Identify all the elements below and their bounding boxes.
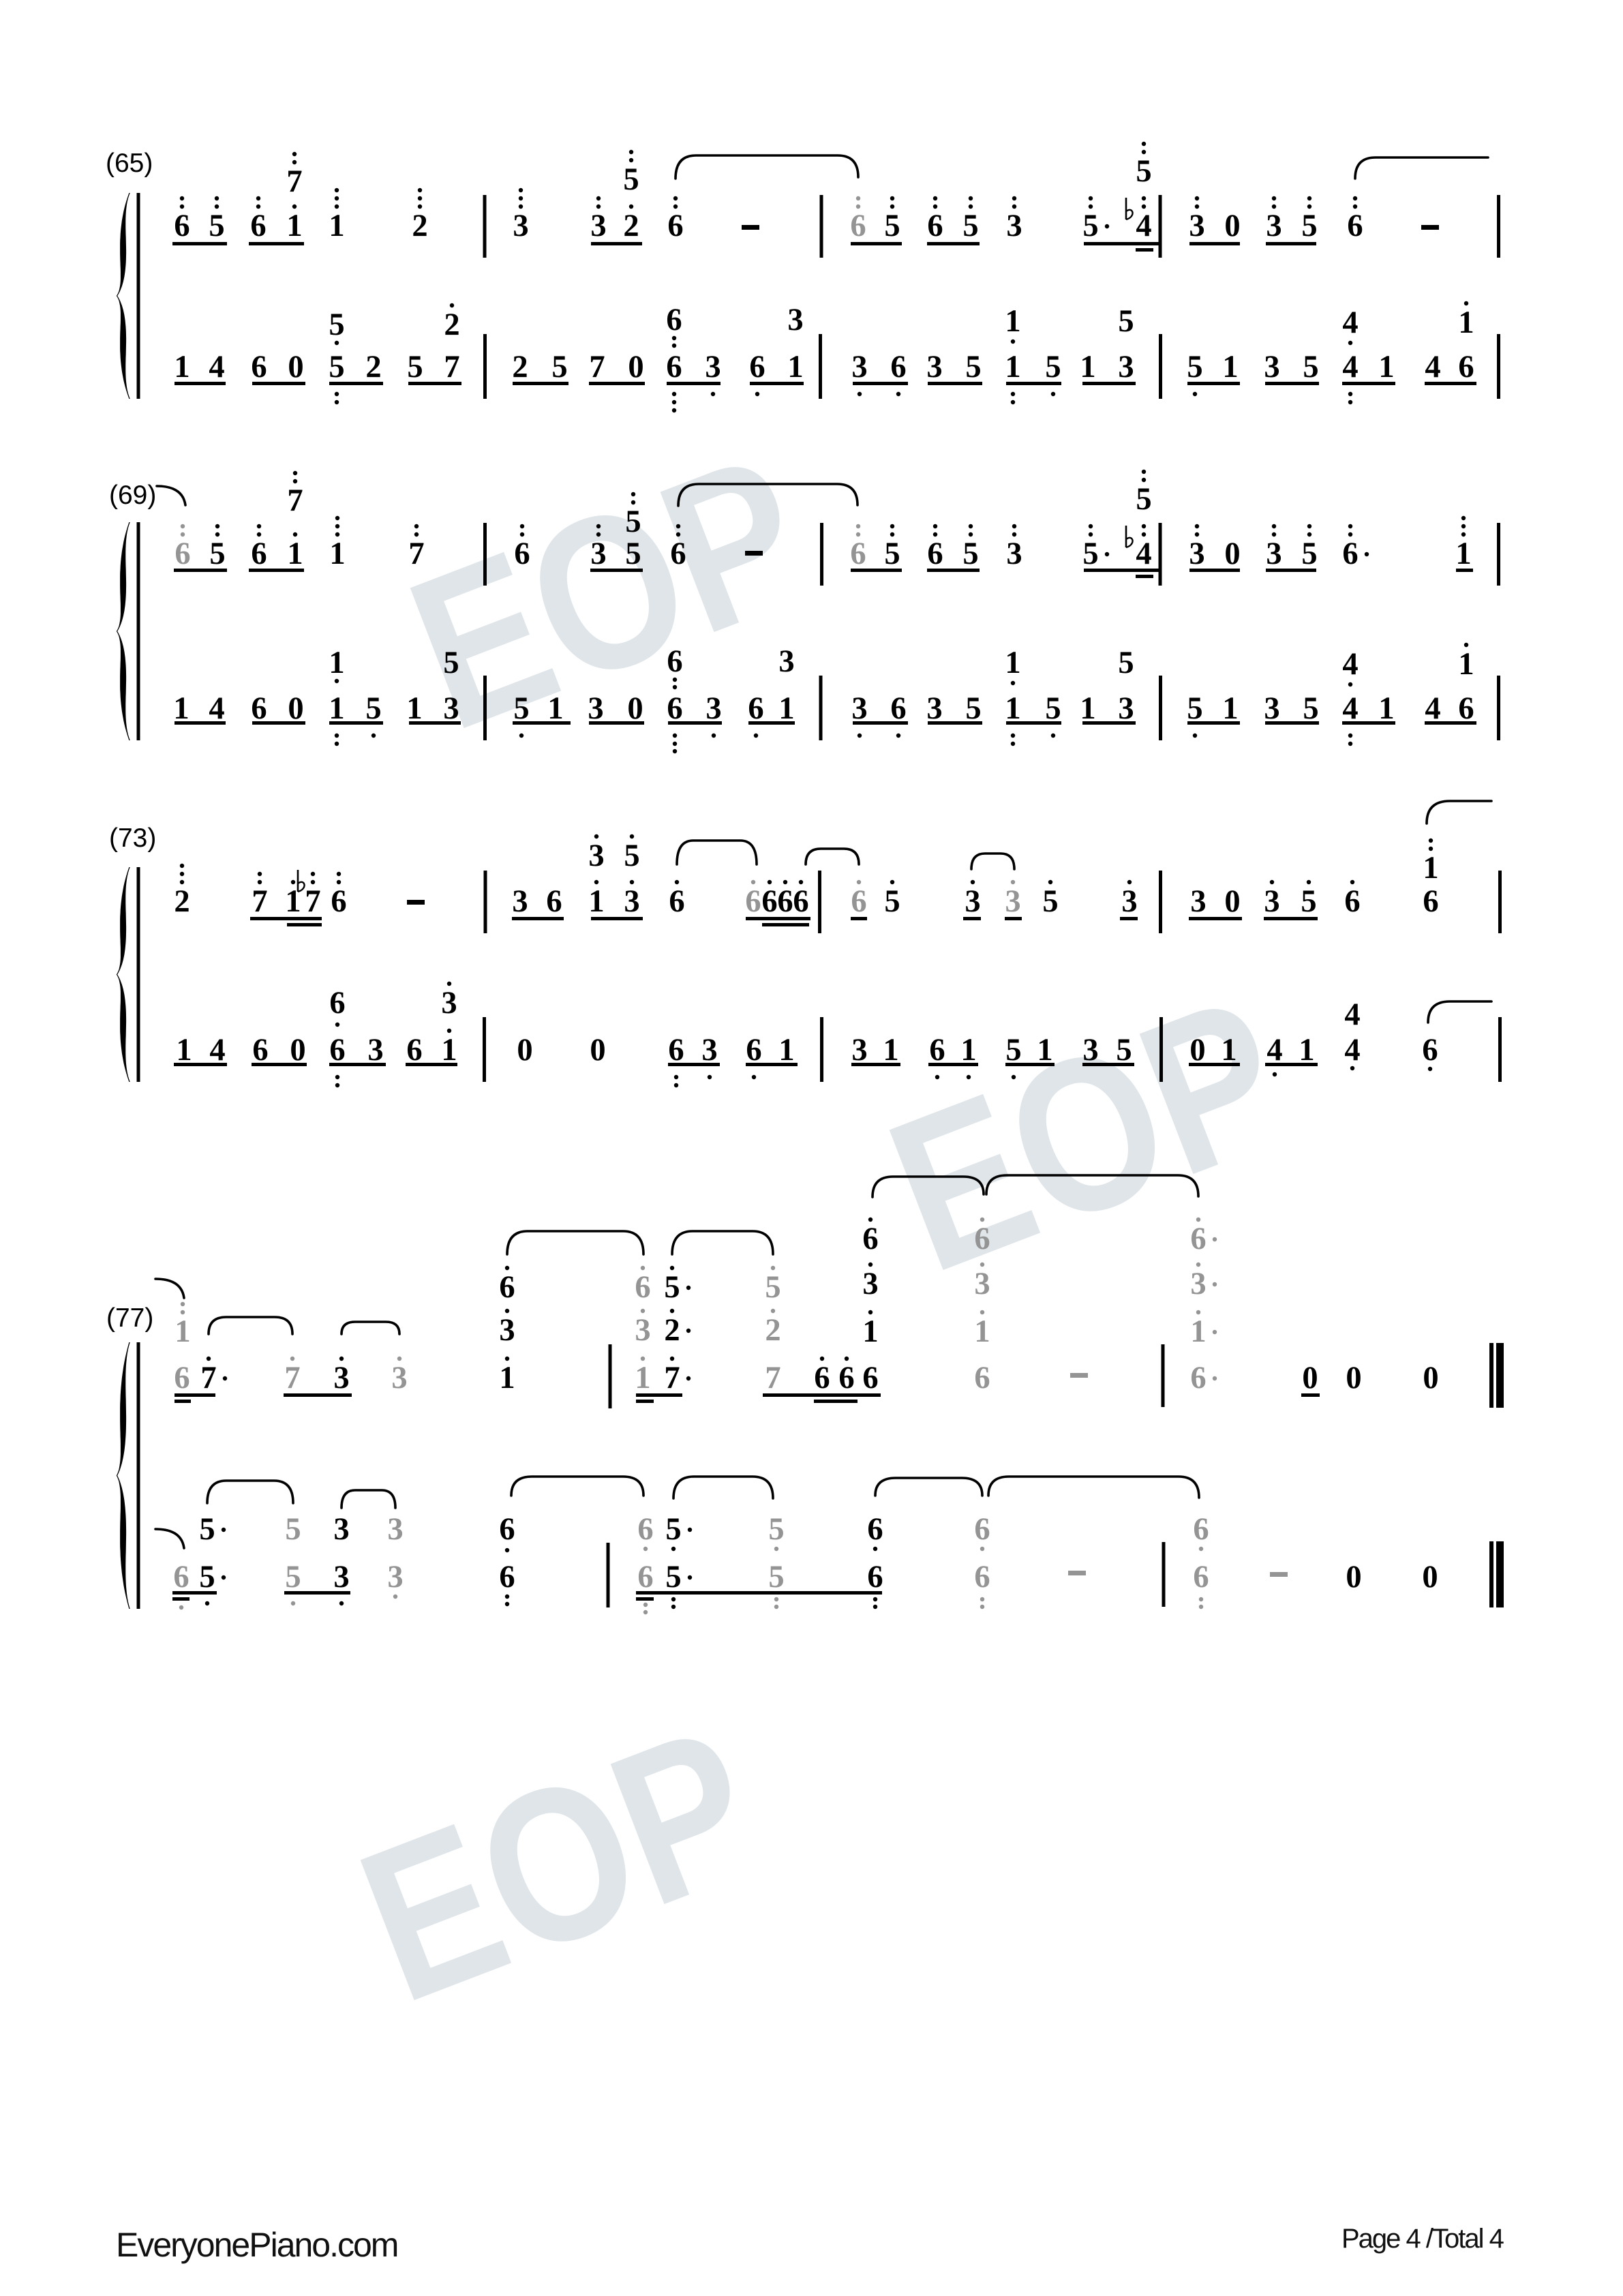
svg-text:1: 1 xyxy=(175,1314,190,1349)
svg-text:5: 5 xyxy=(665,1512,681,1547)
svg-text:3: 3 xyxy=(333,1512,349,1547)
svg-text:3: 3 xyxy=(513,209,528,243)
svg-text:3: 3 xyxy=(624,884,639,919)
svg-text:(69): (69) xyxy=(109,481,156,510)
svg-text:(65): (65) xyxy=(106,149,153,178)
svg-text:6: 6 xyxy=(838,1361,854,1395)
svg-text:5: 5 xyxy=(443,646,459,680)
svg-text:6: 6 xyxy=(890,691,906,726)
svg-text:6: 6 xyxy=(927,537,943,571)
svg-text:3: 3 xyxy=(1082,1033,1098,1068)
svg-text:2: 2 xyxy=(174,884,189,919)
svg-text:1: 1 xyxy=(588,884,604,919)
svg-text:1: 1 xyxy=(1005,691,1020,726)
svg-text:1: 1 xyxy=(286,209,302,243)
svg-text:7: 7 xyxy=(589,350,605,384)
svg-text:6: 6 xyxy=(499,1270,515,1305)
svg-text:3: 3 xyxy=(1118,350,1134,384)
svg-text:6: 6 xyxy=(814,1361,830,1395)
svg-text:4: 4 xyxy=(1136,537,1151,571)
svg-text:1: 1 xyxy=(778,691,794,726)
svg-text:1: 1 xyxy=(1423,851,1438,886)
svg-text:3: 3 xyxy=(787,303,803,337)
svg-text:0: 0 xyxy=(590,1033,605,1068)
svg-text:5: 5 xyxy=(768,1512,784,1547)
svg-text:1: 1 xyxy=(1458,305,1474,340)
svg-text:1: 1 xyxy=(1005,646,1020,680)
svg-text:6: 6 xyxy=(927,209,943,243)
svg-text:3: 3 xyxy=(974,1267,990,1301)
svg-text:3: 3 xyxy=(635,1313,650,1348)
svg-text:3: 3 xyxy=(926,691,942,726)
svg-text:4: 4 xyxy=(209,691,224,726)
svg-text:5: 5 xyxy=(1301,884,1316,919)
svg-text:4: 4 xyxy=(1342,350,1358,384)
svg-text:6: 6 xyxy=(666,350,682,384)
svg-text:3: 3 xyxy=(590,537,606,571)
svg-text:7: 7 xyxy=(287,483,303,518)
svg-text:3: 3 xyxy=(499,1313,515,1348)
svg-text:1: 1 xyxy=(1080,691,1095,726)
svg-text:7: 7 xyxy=(408,537,424,571)
svg-text:3: 3 xyxy=(1005,884,1020,919)
svg-text:3: 3 xyxy=(1190,1267,1206,1301)
svg-text:7: 7 xyxy=(252,884,267,919)
svg-text:2: 2 xyxy=(765,1313,780,1348)
svg-text:6: 6 xyxy=(667,644,682,679)
svg-text:4: 4 xyxy=(1425,350,1440,384)
svg-text:1: 1 xyxy=(862,1314,878,1349)
svg-text:EveryonePiano.com: EveryonePiano.com xyxy=(116,2226,397,2264)
svg-text:6: 6 xyxy=(329,1033,345,1068)
svg-text:(77): (77) xyxy=(106,1303,153,1333)
svg-text:2: 2 xyxy=(623,209,639,243)
svg-text:1: 1 xyxy=(1299,1033,1314,1068)
svg-text:0: 0 xyxy=(1346,1361,1361,1395)
svg-text:5: 5 xyxy=(623,162,639,197)
svg-text:1: 1 xyxy=(1005,350,1020,384)
svg-text:6: 6 xyxy=(1458,350,1474,384)
svg-text:5: 5 xyxy=(329,307,344,342)
svg-text:6: 6 xyxy=(514,537,530,571)
svg-text:5: 5 xyxy=(1187,350,1202,384)
svg-text:5: 5 xyxy=(1082,537,1098,571)
svg-text:3: 3 xyxy=(706,691,721,726)
svg-text:3: 3 xyxy=(1264,884,1279,919)
svg-text:1: 1 xyxy=(499,1361,515,1395)
svg-text:5: 5 xyxy=(1303,691,1318,726)
svg-text:6: 6 xyxy=(1190,1361,1206,1395)
svg-text:3: 3 xyxy=(705,350,721,384)
svg-text:1: 1 xyxy=(173,691,189,726)
svg-text:1: 1 xyxy=(1005,304,1020,339)
svg-text:6: 6 xyxy=(252,1033,268,1068)
svg-text:5: 5 xyxy=(1136,154,1151,189)
svg-text:5: 5 xyxy=(664,1270,680,1305)
svg-text:3: 3 xyxy=(387,1560,403,1595)
svg-text:1: 1 xyxy=(406,691,422,726)
svg-text:3: 3 xyxy=(1266,537,1281,571)
svg-text:1: 1 xyxy=(1378,691,1394,726)
svg-text:1: 1 xyxy=(635,1361,650,1395)
svg-text:1: 1 xyxy=(176,1033,192,1068)
svg-text:3: 3 xyxy=(1264,350,1279,384)
svg-text:6: 6 xyxy=(251,350,267,384)
svg-text:2: 2 xyxy=(512,350,528,384)
svg-text:3: 3 xyxy=(391,1361,407,1395)
svg-text:6: 6 xyxy=(251,537,267,571)
svg-text:4: 4 xyxy=(1342,691,1358,726)
svg-text:6: 6 xyxy=(793,884,808,919)
svg-text:1: 1 xyxy=(329,537,345,571)
svg-text:3: 3 xyxy=(590,209,606,243)
svg-text:1: 1 xyxy=(1221,1033,1237,1068)
svg-text:3: 3 xyxy=(1121,884,1137,919)
svg-text:6: 6 xyxy=(867,1512,883,1547)
svg-text:3: 3 xyxy=(588,691,603,726)
svg-text:1: 1 xyxy=(1080,350,1095,384)
svg-text:6: 6 xyxy=(174,209,189,243)
svg-text:5: 5 xyxy=(209,209,224,243)
svg-text:3: 3 xyxy=(1006,537,1022,571)
svg-text:4: 4 xyxy=(1344,1033,1360,1068)
svg-text:6: 6 xyxy=(1342,537,1358,571)
svg-text:6: 6 xyxy=(862,1361,878,1395)
svg-text:5: 5 xyxy=(962,537,978,571)
svg-text:5: 5 xyxy=(962,209,978,243)
svg-text:6: 6 xyxy=(761,884,777,919)
svg-text:5: 5 xyxy=(1301,537,1317,571)
svg-text:6: 6 xyxy=(974,1512,990,1547)
svg-text:6: 6 xyxy=(499,1560,515,1595)
svg-text:3: 3 xyxy=(1264,691,1279,726)
svg-text:5: 5 xyxy=(1303,350,1318,384)
svg-text:4: 4 xyxy=(1342,305,1358,340)
svg-text:5: 5 xyxy=(625,504,641,539)
svg-text:3: 3 xyxy=(333,1560,349,1595)
svg-text:1: 1 xyxy=(778,1033,794,1068)
svg-text:6: 6 xyxy=(331,884,346,919)
svg-text:2: 2 xyxy=(412,209,427,243)
svg-text:0: 0 xyxy=(288,691,303,726)
svg-text:1: 1 xyxy=(960,1033,976,1068)
svg-text:5: 5 xyxy=(209,537,225,571)
svg-text:6: 6 xyxy=(499,1512,515,1547)
svg-text:6: 6 xyxy=(406,1033,422,1068)
svg-text:5: 5 xyxy=(551,350,567,384)
svg-text:3: 3 xyxy=(1266,209,1281,243)
svg-text:5: 5 xyxy=(365,691,381,726)
svg-text:1: 1 xyxy=(1455,537,1471,571)
svg-text:7: 7 xyxy=(284,1361,300,1395)
svg-text:(73): (73) xyxy=(109,824,156,853)
svg-text:5: 5 xyxy=(765,1270,780,1305)
svg-text:6: 6 xyxy=(851,884,866,919)
svg-text:3: 3 xyxy=(333,1361,349,1395)
svg-text:3: 3 xyxy=(387,1512,403,1547)
svg-text:1: 1 xyxy=(1222,350,1238,384)
svg-text:1: 1 xyxy=(287,537,303,571)
svg-text:5: 5 xyxy=(884,209,900,243)
svg-text:5: 5 xyxy=(407,350,423,384)
svg-text:1: 1 xyxy=(787,350,803,384)
svg-text:6: 6 xyxy=(251,691,267,726)
svg-text:5: 5 xyxy=(285,1512,301,1547)
svg-text:6: 6 xyxy=(748,691,763,726)
svg-text:1: 1 xyxy=(974,1314,990,1349)
svg-text:3: 3 xyxy=(1190,884,1206,919)
svg-text:5: 5 xyxy=(329,350,344,384)
svg-text:6: 6 xyxy=(850,537,866,571)
svg-text:6: 6 xyxy=(745,884,761,919)
svg-text:5: 5 xyxy=(1045,350,1061,384)
svg-text:4: 4 xyxy=(1136,209,1151,243)
svg-text:5: 5 xyxy=(1301,209,1317,243)
svg-text:1: 1 xyxy=(441,1033,457,1068)
svg-text:6: 6 xyxy=(635,1270,650,1305)
svg-text:6: 6 xyxy=(749,350,765,384)
svg-text:7: 7 xyxy=(305,884,320,919)
svg-text:3: 3 xyxy=(1006,209,1022,243)
svg-text:3: 3 xyxy=(441,986,457,1021)
svg-text:1: 1 xyxy=(1190,1314,1206,1349)
svg-text:1: 1 xyxy=(329,646,344,680)
svg-text:6: 6 xyxy=(746,1033,761,1068)
svg-text:6: 6 xyxy=(1458,691,1474,726)
svg-text:7: 7 xyxy=(444,350,459,384)
svg-text:2: 2 xyxy=(444,307,459,342)
svg-text:1: 1 xyxy=(1222,691,1238,726)
svg-text:1: 1 xyxy=(329,209,344,243)
svg-text:4: 4 xyxy=(1344,997,1360,1032)
svg-text:5: 5 xyxy=(1136,482,1151,517)
svg-text:4: 4 xyxy=(1342,647,1358,682)
svg-text:0: 0 xyxy=(1224,884,1240,919)
svg-text:Page 4 /Total 4: Page 4 /Total 4 xyxy=(1341,2224,1504,2254)
svg-text:6: 6 xyxy=(667,691,682,726)
svg-text:5: 5 xyxy=(1005,1033,1021,1068)
svg-text:0: 0 xyxy=(288,350,303,384)
svg-text:5: 5 xyxy=(1118,304,1134,339)
svg-text:3: 3 xyxy=(443,691,459,726)
svg-text:6: 6 xyxy=(1193,1512,1209,1547)
svg-text:4: 4 xyxy=(1266,1033,1282,1068)
svg-text:5: 5 xyxy=(1116,1033,1132,1068)
svg-text:0: 0 xyxy=(290,1033,305,1068)
svg-text:6: 6 xyxy=(850,209,866,243)
svg-text:5: 5 xyxy=(1118,646,1134,680)
svg-text:6: 6 xyxy=(1344,884,1360,919)
svg-text:5: 5 xyxy=(965,350,981,384)
svg-text:6: 6 xyxy=(667,209,683,243)
svg-text:6: 6 xyxy=(173,1560,189,1595)
svg-text:3: 3 xyxy=(778,644,794,679)
svg-text:1: 1 xyxy=(1037,1033,1052,1068)
svg-text:6: 6 xyxy=(668,1033,684,1068)
svg-text:0: 0 xyxy=(1302,1361,1318,1395)
svg-text:0: 0 xyxy=(1224,537,1240,571)
svg-text:5: 5 xyxy=(768,1560,784,1595)
svg-text:3: 3 xyxy=(512,884,528,919)
svg-text:5: 5 xyxy=(1042,884,1058,919)
svg-text:5: 5 xyxy=(199,1560,215,1595)
svg-text:0: 0 xyxy=(628,350,643,384)
svg-text:6: 6 xyxy=(974,1560,990,1595)
svg-text:6: 6 xyxy=(175,537,190,571)
svg-text:6: 6 xyxy=(250,209,266,243)
svg-text:1: 1 xyxy=(1458,647,1474,682)
svg-text:1: 1 xyxy=(329,691,344,726)
svg-text:0: 0 xyxy=(1224,209,1240,243)
svg-text:2: 2 xyxy=(664,1313,680,1348)
svg-text:0: 0 xyxy=(517,1033,532,1068)
svg-text:3: 3 xyxy=(1189,209,1204,243)
svg-text:6: 6 xyxy=(669,884,684,919)
svg-text:6: 6 xyxy=(1422,1033,1438,1068)
svg-text:6: 6 xyxy=(666,303,682,337)
svg-text:5: 5 xyxy=(625,537,641,571)
svg-text:6: 6 xyxy=(329,986,345,1021)
svg-text:0: 0 xyxy=(1189,1033,1205,1068)
svg-text:5: 5 xyxy=(1082,209,1098,243)
svg-text:5: 5 xyxy=(884,537,900,571)
svg-text:3: 3 xyxy=(1189,537,1204,571)
svg-text:0: 0 xyxy=(1423,1361,1438,1395)
svg-text:6: 6 xyxy=(637,1560,653,1595)
svg-text:6: 6 xyxy=(890,350,906,384)
svg-text:4: 4 xyxy=(209,1033,225,1068)
svg-text:7: 7 xyxy=(664,1361,680,1395)
svg-text:3: 3 xyxy=(588,839,604,873)
svg-text:3: 3 xyxy=(851,350,867,384)
svg-text:3: 3 xyxy=(851,1033,867,1068)
svg-text:6: 6 xyxy=(637,1512,653,1547)
svg-text:6: 6 xyxy=(929,1033,945,1068)
svg-text:5: 5 xyxy=(624,839,639,873)
svg-text:6: 6 xyxy=(174,1361,189,1395)
svg-text:6: 6 xyxy=(1193,1560,1209,1595)
svg-text:5: 5 xyxy=(965,691,981,726)
svg-text:0: 0 xyxy=(1346,1560,1361,1595)
svg-text:4: 4 xyxy=(209,350,224,384)
svg-text:5: 5 xyxy=(1187,691,1202,726)
svg-text:6: 6 xyxy=(974,1222,990,1256)
svg-text:5: 5 xyxy=(665,1560,681,1595)
svg-text:5: 5 xyxy=(285,1560,301,1595)
svg-text:6: 6 xyxy=(1190,1222,1206,1256)
svg-text:6: 6 xyxy=(1347,209,1363,243)
svg-text:6: 6 xyxy=(546,884,562,919)
svg-text:1: 1 xyxy=(174,350,189,384)
svg-text:3: 3 xyxy=(965,884,980,919)
svg-text:3: 3 xyxy=(1118,691,1134,726)
svg-text:6: 6 xyxy=(867,1560,883,1595)
svg-text:0: 0 xyxy=(1422,1560,1438,1595)
svg-text:1: 1 xyxy=(1378,350,1394,384)
svg-text:6: 6 xyxy=(974,1361,990,1395)
svg-text:3: 3 xyxy=(367,1033,383,1068)
svg-text:5: 5 xyxy=(199,1512,215,1547)
svg-text:1: 1 xyxy=(883,1033,898,1068)
svg-text:7: 7 xyxy=(286,164,302,199)
svg-text:3: 3 xyxy=(701,1033,717,1068)
svg-text:5: 5 xyxy=(513,691,529,726)
svg-text:4: 4 xyxy=(1425,691,1440,726)
svg-text:6: 6 xyxy=(670,537,686,571)
svg-text:3: 3 xyxy=(851,691,867,726)
svg-text:1: 1 xyxy=(547,691,563,726)
svg-text:6: 6 xyxy=(1423,884,1438,919)
svg-text:6: 6 xyxy=(862,1222,878,1256)
svg-text:7: 7 xyxy=(765,1361,780,1395)
svg-text:2: 2 xyxy=(365,350,381,384)
svg-text:5: 5 xyxy=(1045,691,1061,726)
svg-text:5: 5 xyxy=(884,884,900,919)
svg-text:0: 0 xyxy=(627,691,643,726)
svg-text:7: 7 xyxy=(200,1361,216,1395)
svg-text:6: 6 xyxy=(777,884,793,919)
svg-text:3: 3 xyxy=(862,1267,878,1301)
svg-text:3: 3 xyxy=(926,350,942,384)
